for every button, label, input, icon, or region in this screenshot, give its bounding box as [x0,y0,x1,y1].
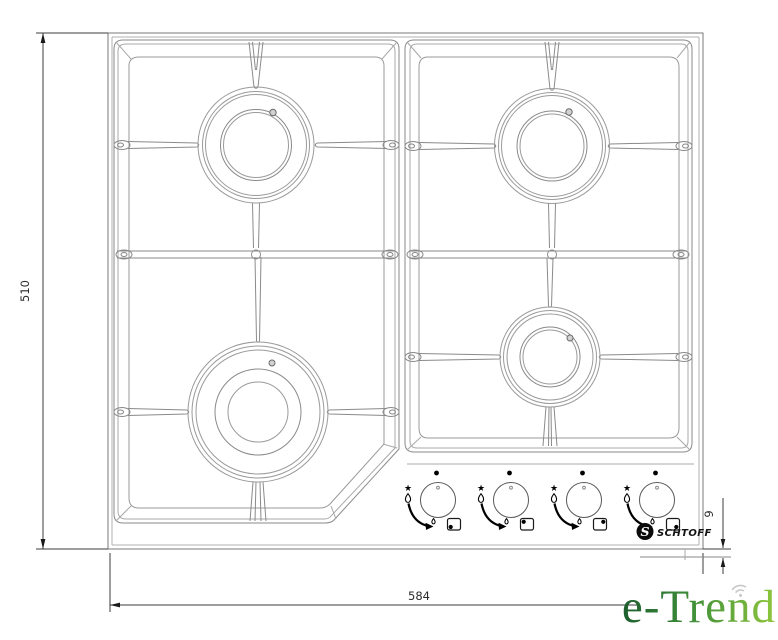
knob-circle [640,483,675,518]
small-flame-icon [432,519,435,524]
burner-front-left [188,342,328,482]
off-position-dot [507,471,512,476]
large-flame-icon [624,494,629,503]
dim-arrow-down [41,539,46,549]
star-ignition-icon: ★ [623,484,631,494]
rotation-arc-icon [482,504,501,526]
knob-3: ★ [550,471,607,530]
large-flame-icon [478,494,483,503]
off-position-dot [580,471,585,476]
corner-bevels-right [407,42,690,450]
grid-rail-right [407,250,689,259]
dim-arrow-left [110,603,120,608]
small-flame-icon [651,519,654,524]
dim-arrow-up-small [721,558,726,567]
grid-rail-left [116,250,398,259]
rotation-arc-icon [628,504,647,526]
star-ignition-icon: ★ [404,484,412,494]
star-ignition-icon: ★ [550,484,558,494]
burner-position-dot-top-left [522,520,526,524]
igniter-dot [270,109,276,115]
large-flame-icon [551,494,556,503]
burner-rear-right [495,89,610,204]
dim-arrow-down-small [721,539,726,548]
dim-label-height: 510 [18,280,32,302]
watermark-text: e-Trend [622,581,776,633]
burner-front-right [500,307,600,407]
dim-label-edge: 9 [702,510,716,517]
dim-label-width: 584 [408,589,430,603]
dimension-height-510 [36,33,108,549]
knob-circle [494,483,529,518]
small-flame-icon [505,519,508,524]
knob-circle [421,483,456,518]
off-position-dot [653,471,658,476]
knob-2: ★ [477,471,534,530]
brand-logo: S SCHTOFF [637,523,712,540]
star-ignition-icon: ★ [477,484,485,494]
brand-name: SCHTOFF [657,528,712,539]
large-flame-icon [405,494,410,503]
brand-badge-letter: S [640,524,649,539]
rotation-arc-icon [555,504,574,526]
dim-arrow-up [41,33,46,43]
igniter-dot [567,335,573,341]
knob-1: ★ [404,471,461,530]
igniter-dot [269,360,275,366]
knob-circle [567,483,602,518]
small-flame-icon [578,519,581,524]
igniter-dot [566,109,572,115]
hob-technical-drawing: ★ ★ ★ ★ [0,0,778,640]
rotation-arc-icon [409,504,428,526]
pan-support-arms [114,42,692,521]
burner-position-dot-top-right [601,520,605,524]
burner-rear-left [198,87,314,203]
watermark: e-Trend [622,581,776,633]
dimension-width-584 [110,553,703,612]
product-drawing-page: ★ ★ ★ ★ [0,0,778,640]
knob-4: ★ [623,471,680,530]
off-position-dot [434,471,439,476]
corner-bevels-left [116,42,397,521]
burner-position-dot-bottom-left [449,525,453,529]
